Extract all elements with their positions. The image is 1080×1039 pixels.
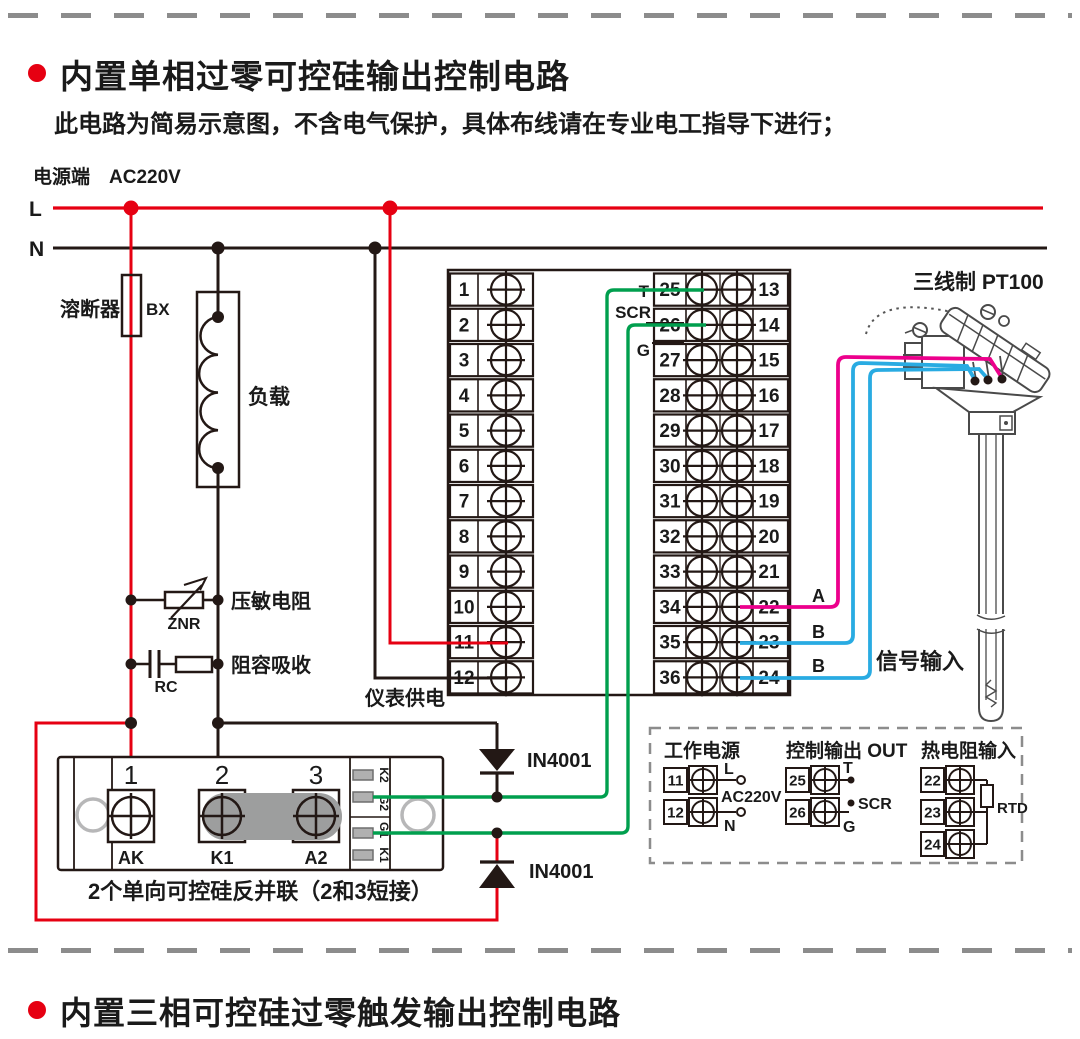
meter-supply-label: 仪表供电	[364, 686, 445, 710]
sensor-lid-screw-2	[981, 305, 1009, 326]
svg-text:N: N	[724, 818, 736, 835]
legend-output-title: 控制输出 OUT	[786, 739, 908, 762]
page: 内置单相过零可控硅输出控制电路 此电路为简易示意图，不含电气保护，具体布线请在专…	[0, 0, 1080, 1039]
out-scr-label: SCR	[615, 303, 651, 322]
svg-text:15: 15	[758, 351, 780, 372]
svg-text:2: 2	[459, 315, 470, 336]
terminal-row-left: 6	[450, 447, 533, 485]
svg-text:25: 25	[789, 773, 806, 790]
svg-text:G1: G1	[377, 822, 391, 838]
svg-text:10: 10	[453, 597, 474, 618]
svg-text:19: 19	[758, 492, 779, 513]
svg-text:11: 11	[668, 773, 684, 790]
sensor-probe	[977, 434, 1005, 721]
svg-text:33: 33	[659, 562, 680, 583]
svg-text:RC: RC	[154, 679, 178, 696]
svg-text:IN4001: IN4001	[527, 750, 592, 772]
legend-terminal-row: 26	[786, 797, 840, 827]
terminal-row-left: 8	[450, 517, 533, 555]
terminal-row-right: 3220	[654, 517, 788, 555]
legend-rtd-label: RTD	[997, 800, 1028, 817]
svg-text:G: G	[843, 819, 855, 836]
terminal-row-left: 10	[450, 588, 533, 626]
svg-text:27: 27	[659, 351, 680, 372]
svg-text:3: 3	[309, 760, 323, 790]
svg-text:18: 18	[758, 456, 779, 477]
sensor-title: 三线制 PT100	[913, 270, 1044, 294]
terminal-row-right: 3119	[654, 482, 788, 520]
svg-text:K1: K1	[210, 848, 233, 868]
svg-text:17: 17	[758, 421, 779, 442]
legend-terminal-row: 23	[921, 797, 975, 827]
wire-label-b2: B	[812, 656, 825, 676]
sensor-lid-arc	[866, 307, 952, 334]
load-label: 负载	[248, 385, 290, 409]
svg-text:压敏电阻: 压敏电阻	[231, 589, 311, 613]
svg-text:12: 12	[667, 805, 684, 822]
sensor-lid-screw-1	[905, 323, 927, 337]
gate-pin-k2	[353, 770, 373, 780]
svg-text:L: L	[724, 761, 734, 778]
neutral-label: N	[29, 238, 44, 261]
legend-n-terminal	[737, 808, 745, 816]
fuse-label: 溶断器	[60, 297, 121, 321]
svg-text:34: 34	[659, 597, 681, 618]
legend-power-title: 工作电源	[664, 739, 740, 762]
svg-text:13: 13	[758, 280, 779, 301]
terminal-row-left: 3	[450, 341, 533, 379]
live-label: L	[29, 198, 42, 221]
diode-1: IN4001	[479, 723, 592, 797]
svg-text:2: 2	[215, 760, 229, 790]
terminal-row-right: 3018	[654, 447, 788, 485]
terminal-row-left: 2	[450, 306, 533, 344]
gate-pin-g1	[353, 828, 373, 838]
gate-pin-g2	[353, 792, 373, 802]
svg-text:IN4001: IN4001	[529, 861, 594, 883]
scr-module: K2 G2 G1 K1 1 2 3 AK K1 A2 2个单向可控硅反并联（2和…	[58, 757, 443, 904]
svg-text:9: 9	[459, 562, 470, 583]
load-coil	[199, 317, 218, 468]
svg-text:7: 7	[459, 492, 470, 513]
svg-text:21: 21	[758, 562, 780, 583]
legend-terminal-row: 11	[664, 765, 718, 795]
terminal-row-right: 3321	[654, 553, 788, 591]
wiring-diagram: 电源端 AC220V L N 溶断器 BX 负载 ZNR 压敏电阻	[0, 0, 1080, 1039]
signal-input-label: 信号输入	[876, 649, 964, 674]
fuse-code: BX	[146, 300, 170, 319]
legend-terminal-row: 24	[921, 829, 975, 859]
svg-text:1: 1	[124, 760, 138, 790]
terminal-row-left: 5	[450, 412, 533, 450]
sensor-neck	[936, 388, 1040, 412]
svg-text:6: 6	[459, 456, 470, 477]
sensor-element	[986, 680, 996, 707]
svg-text:36: 36	[659, 668, 680, 689]
svg-text:3: 3	[459, 351, 470, 372]
svg-text:4: 4	[459, 386, 470, 407]
terminal-row-left: 4	[450, 376, 533, 414]
legend-terminal-row: 22	[921, 765, 975, 795]
svg-text:A2: A2	[304, 848, 327, 868]
wire-label-b1: B	[812, 622, 825, 642]
svg-text:26: 26	[789, 805, 806, 822]
terminal-row-right: 2917	[654, 412, 788, 450]
svg-text:阻容吸收: 阻容吸收	[231, 653, 311, 677]
varistor: ZNR 压敏电阻	[131, 578, 311, 633]
svg-text:1: 1	[459, 280, 470, 301]
svg-text:K2: K2	[377, 767, 391, 783]
svg-text:31: 31	[659, 492, 681, 513]
wire-label-a: A	[812, 586, 825, 606]
terminal-row-right: 2816	[654, 376, 788, 414]
svg-text:29: 29	[659, 421, 680, 442]
svg-text:23: 23	[924, 805, 941, 822]
svg-text:22: 22	[924, 773, 941, 790]
svg-text:5: 5	[459, 421, 470, 442]
svg-text:AC220V: AC220V	[721, 789, 782, 806]
legend-terminal-row: 12	[664, 797, 718, 827]
scr-caption: 2个单向可控硅反并联（2和3短接）	[88, 879, 433, 904]
svg-text:32: 32	[659, 527, 680, 548]
terminal-row-left: 1	[450, 271, 533, 309]
svg-text:SCR: SCR	[858, 796, 892, 813]
terminal-row-left: 7	[450, 482, 533, 520]
svg-text:T: T	[843, 760, 853, 777]
legend-l-terminal	[737, 776, 745, 784]
svg-text:16: 16	[758, 386, 779, 407]
svg-text:K1: K1	[377, 847, 391, 863]
svg-text:8: 8	[459, 527, 470, 548]
source-label: 电源端 AC220V	[33, 165, 181, 188]
terminal-row-left: 9	[450, 553, 533, 591]
out-g-label: G	[637, 341, 650, 360]
terminal-row-right: 2715	[654, 341, 788, 379]
svg-text:14: 14	[758, 315, 780, 336]
svg-text:24: 24	[924, 837, 941, 854]
svg-text:20: 20	[758, 527, 779, 548]
legend-terminal-row: 25	[786, 765, 840, 795]
legend-box: 工作电源 控制输出 OUT 热电阻输入 11122526222324	[650, 728, 1028, 863]
svg-text:AK: AK	[118, 848, 144, 868]
sensor-head-body	[922, 336, 964, 388]
svg-text:30: 30	[659, 456, 680, 477]
legend-rtd-title: 热电阻输入	[921, 739, 1016, 762]
gate-pin-k1	[353, 850, 373, 860]
svg-text:28: 28	[659, 386, 680, 407]
svg-text:35: 35	[659, 633, 681, 654]
rc-snubber: RC 阻容吸收	[131, 650, 311, 696]
svg-text:ZNR: ZNR	[168, 616, 201, 633]
